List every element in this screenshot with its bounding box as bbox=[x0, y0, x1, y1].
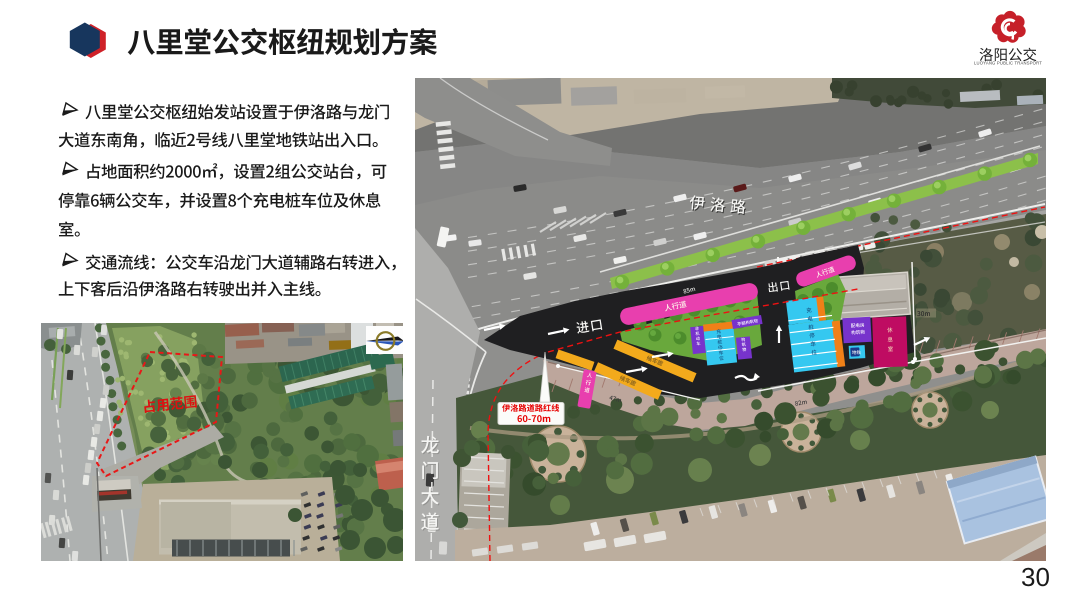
svg-text:LUOYANG PUBLIC TRANSPORT: LUOYANG PUBLIC TRANSPORT bbox=[974, 61, 1042, 66]
svg-text:30: 30 bbox=[1021, 562, 1050, 592]
